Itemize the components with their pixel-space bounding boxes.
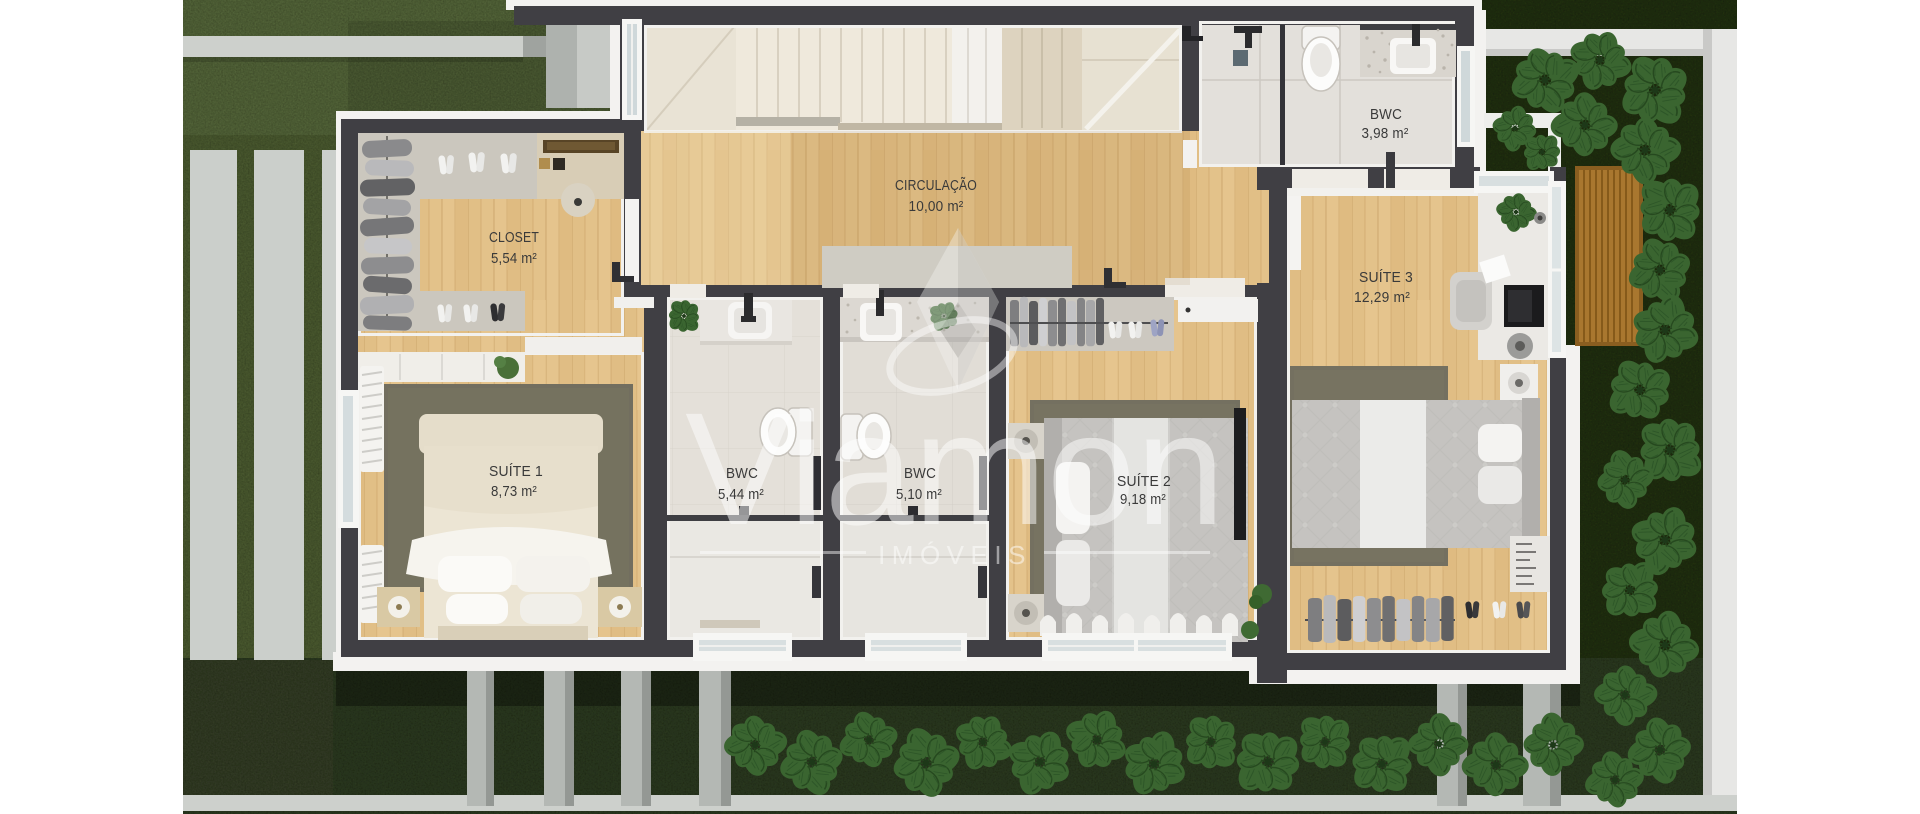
svg-text:CIRCULAÇÃO: CIRCULAÇÃO: [895, 177, 977, 194]
svg-text:SUÍTE 1: SUÍTE 1: [489, 463, 543, 480]
svg-text:SUÍTE 3: SUÍTE 3: [1359, 269, 1413, 286]
svg-text:12,29 m²: 12,29 m²: [1354, 290, 1410, 306]
svg-text:5,54 m²: 5,54 m²: [491, 251, 537, 267]
svg-text:IMÓVEIS: IMÓVEIS: [878, 540, 1032, 570]
svg-text:CLOSET: CLOSET: [489, 230, 539, 246]
svg-text:Viamon: Viamon: [685, 379, 1225, 558]
svg-text:8,73 m²: 8,73 m²: [491, 484, 537, 500]
svg-text:BWC: BWC: [904, 466, 936, 482]
svg-text:BWC: BWC: [726, 466, 758, 482]
svg-text:3,98 m²: 3,98 m²: [1362, 126, 1409, 142]
svg-text:BWC: BWC: [1370, 107, 1402, 123]
svg-text:SUÍTE 2: SUÍTE 2: [1117, 473, 1171, 490]
svg-text:10,00 m²: 10,00 m²: [909, 199, 964, 215]
svg-text:5,44 m²: 5,44 m²: [718, 487, 764, 503]
svg-text:5,10 m²: 5,10 m²: [896, 487, 942, 503]
svg-text:9,18 m²: 9,18 m²: [1120, 492, 1166, 508]
